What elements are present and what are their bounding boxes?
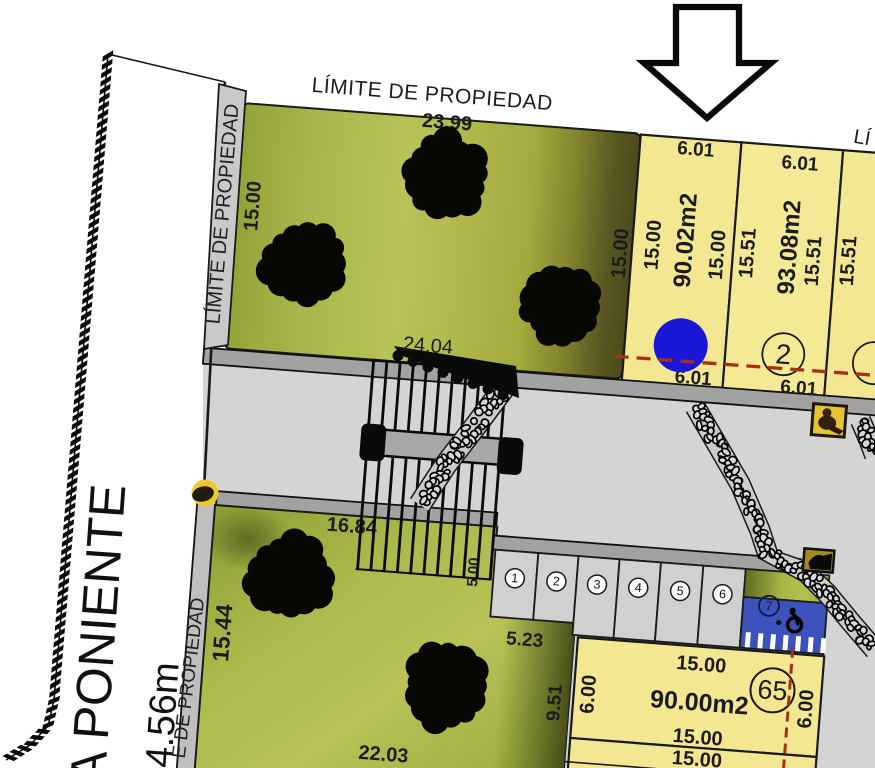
svg-text:15.00: 15.00 bbox=[705, 229, 731, 281]
svg-text:7: 7 bbox=[765, 598, 773, 614]
svg-text:15.00: 15.00 bbox=[640, 219, 666, 271]
svg-text:1: 1 bbox=[511, 571, 519, 585]
svg-text:2: 2 bbox=[774, 338, 792, 370]
svg-text:15.51: 15.51 bbox=[735, 227, 761, 279]
svg-text:6.01: 6.01 bbox=[779, 377, 818, 401]
svg-text:5.23: 5.23 bbox=[505, 628, 543, 652]
svg-text:22.03: 22.03 bbox=[358, 742, 410, 768]
svg-text:15.00: 15.00 bbox=[675, 652, 727, 678]
svg-text:2: 2 bbox=[552, 574, 560, 588]
svg-text:6.00: 6.00 bbox=[794, 689, 819, 730]
svg-text:6.01: 6.01 bbox=[781, 152, 820, 176]
svg-text:15.00: 15.00 bbox=[608, 228, 634, 280]
svg-text:15.00: 15.00 bbox=[240, 180, 266, 232]
svg-text:4: 4 bbox=[634, 581, 642, 595]
svg-text:16.84: 16.84 bbox=[326, 514, 378, 540]
svg-text:24.04: 24.04 bbox=[402, 333, 454, 359]
svg-text:15.51: 15.51 bbox=[836, 235, 862, 287]
svg-text:15.44: 15.44 bbox=[207, 603, 237, 663]
svg-text:5: 5 bbox=[676, 584, 684, 598]
svg-text:65: 65 bbox=[756, 674, 788, 706]
svg-text:15.51: 15.51 bbox=[801, 235, 827, 287]
svg-text:9.51: 9.51 bbox=[543, 683, 567, 722]
svg-text:15.00: 15.00 bbox=[671, 747, 723, 768]
svg-text:6.01: 6.01 bbox=[676, 138, 715, 162]
svg-text:6.00: 6.00 bbox=[576, 674, 601, 715]
svg-text:5.00: 5.00 bbox=[464, 557, 483, 587]
svg-text:3: 3 bbox=[593, 577, 601, 591]
svg-text:6: 6 bbox=[718, 587, 726, 601]
